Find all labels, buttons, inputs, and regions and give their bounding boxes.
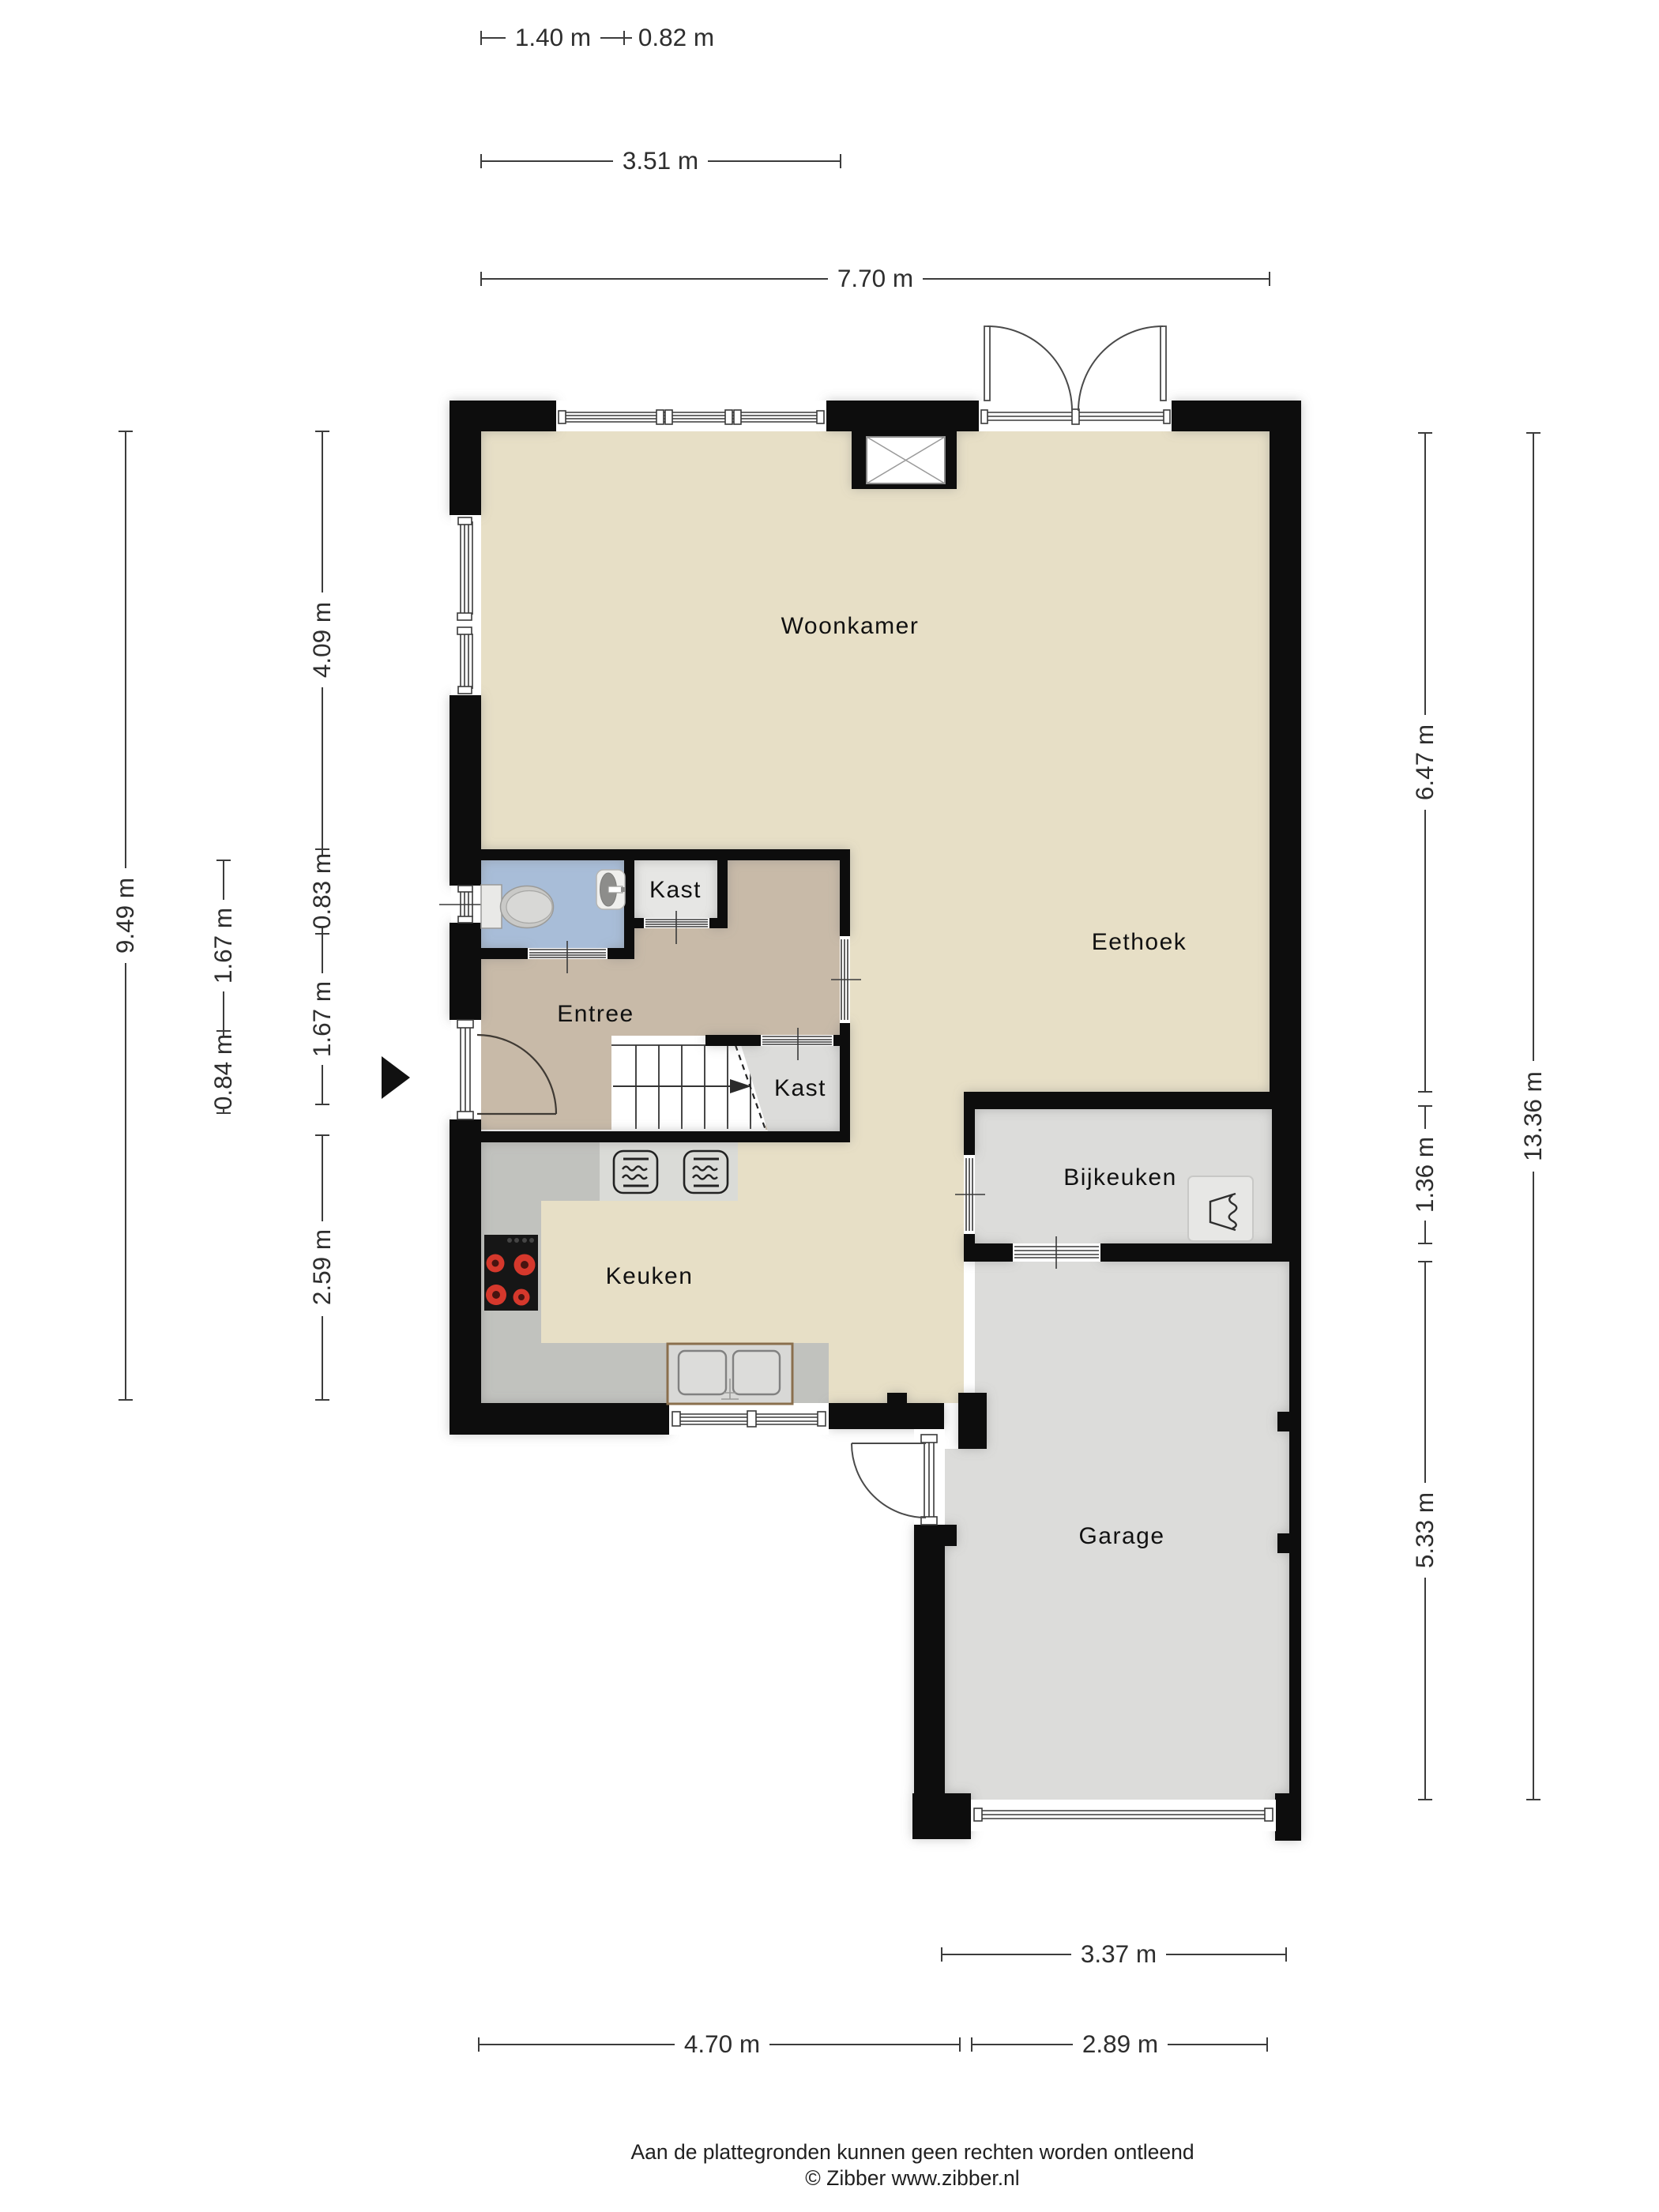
svg-text:2.89 m: 2.89 m [1082, 2030, 1158, 2058]
svg-text:1.67 m: 1.67 m [307, 981, 336, 1057]
svg-text:Aan de plattegronden kunnen ge: Aan de plattegronden kunnen geen rechten… [630, 2140, 1194, 2164]
svg-text:5.33 m: 5.33 m [1410, 1492, 1439, 1568]
svg-text:2.59 m: 2.59 m [307, 1229, 336, 1305]
svg-text:Keuken: Keuken [606, 1263, 694, 1289]
svg-text:Entree: Entree [557, 1001, 634, 1027]
svg-text:1.40 m: 1.40 m [515, 23, 591, 51]
svg-text:Eethoek: Eethoek [1092, 929, 1187, 955]
svg-text:3.51 m: 3.51 m [623, 146, 698, 175]
svg-text:13.36 m: 13.36 m [1518, 1071, 1547, 1161]
svg-text:1.67 m: 1.67 m [209, 908, 237, 984]
svg-text:4.70 m: 4.70 m [684, 2030, 760, 2058]
svg-text:0.84 m: 0.84 m [209, 1034, 237, 1110]
svg-text:Kast: Kast [649, 877, 702, 903]
svg-text:© Zibber www.zibber.nl: © Zibber www.zibber.nl [805, 2166, 1019, 2190]
svg-text:9.49 m: 9.49 m [111, 878, 139, 954]
svg-text:3.37 m: 3.37 m [1081, 1939, 1157, 1968]
svg-text:6.47 m: 6.47 m [1410, 724, 1439, 800]
svg-text:4.09 m: 4.09 m [307, 602, 336, 678]
svg-text:7.70 m: 7.70 m [837, 264, 913, 292]
svg-text:Kast: Kast [774, 1075, 826, 1101]
svg-text:Bijkeuken: Bijkeuken [1063, 1164, 1177, 1191]
svg-text:Woonkamer: Woonkamer [781, 613, 920, 639]
svg-text:0.82 m: 0.82 m [638, 23, 714, 51]
svg-text:0.83 m: 0.83 m [307, 853, 336, 929]
svg-text:Garage: Garage [1078, 1523, 1164, 1549]
svg-text:1.36 m: 1.36 m [1410, 1137, 1439, 1213]
